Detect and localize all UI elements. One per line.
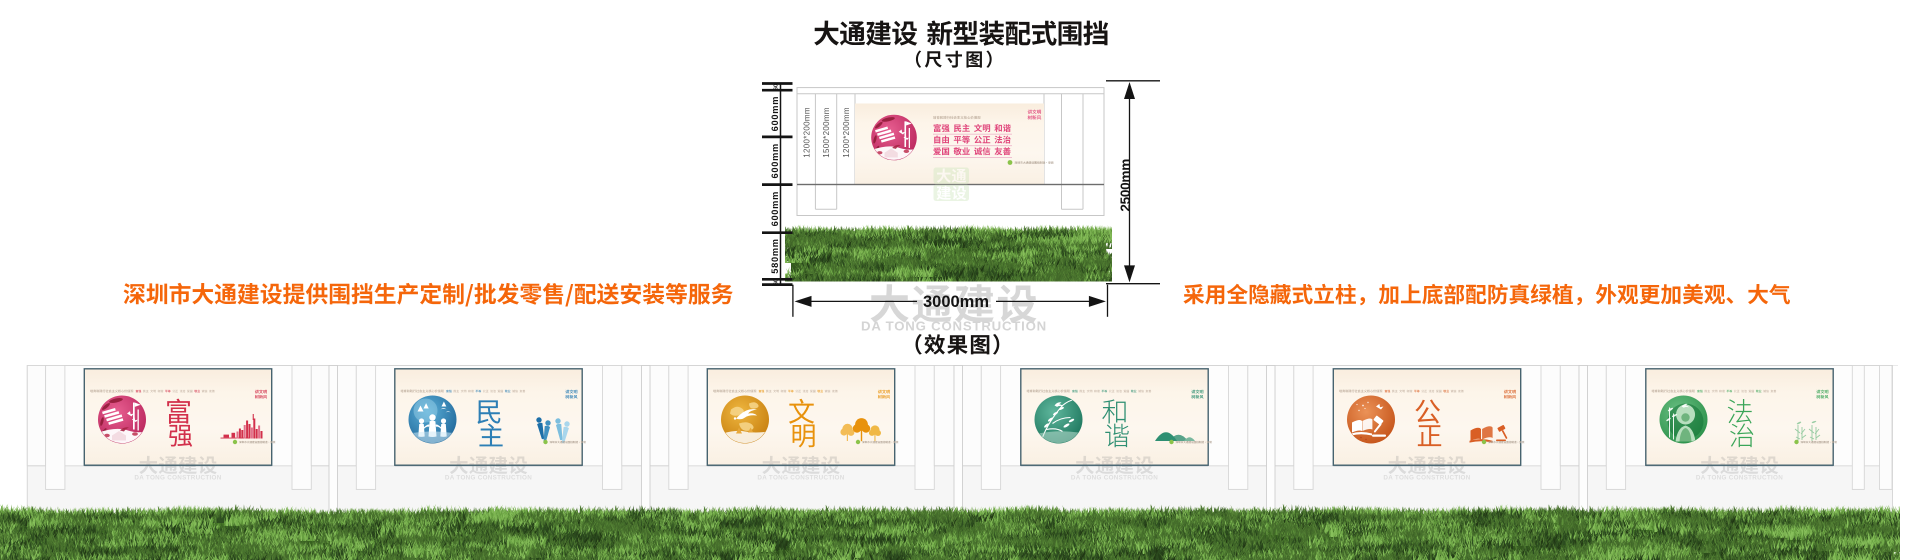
svg-text:DA TONG CONSTRUCTION: DA TONG CONSTRUCTION (757, 474, 844, 481)
svg-text:60: 60 (773, 84, 779, 90)
svg-text:1200*200mm: 1200*200mm (842, 107, 851, 158)
svg-text:DA TONG CONSTRUCTION: DA TONG CONSTRUCTION (1696, 474, 1783, 481)
svg-text:DA TONG CONSTRUCTION: DA TONG CONSTRUCTION (445, 474, 532, 481)
svg-text:60: 60 (773, 279, 779, 285)
svg-text:2500mm: 2500mm (1118, 159, 1133, 212)
svg-text:1200*200mm: 1200*200mm (803, 107, 812, 158)
svg-text:1500*200mm: 1500*200mm (822, 107, 831, 158)
svg-text:DA TONG CONSTRUCTION: DA TONG CONSTRUCTION (1071, 474, 1158, 481)
svg-text:DA TONG CONSTRUCTION: DA TONG CONSTRUCTION (134, 474, 221, 481)
svg-text:600mm: 600mm (770, 191, 780, 227)
svg-text:DA TONG CONSTRUCTION: DA TONG CONSTRUCTION (1383, 474, 1470, 481)
svg-text:600mm: 600mm (770, 96, 780, 132)
svg-text:3000mm: 3000mm (923, 293, 989, 311)
svg-text:600mm: 600mm (770, 143, 780, 179)
svg-text:DA TONG CONSTRUCTION: DA TONG CONSTRUCTION (861, 319, 1047, 334)
svg-text:580mm: 580mm (770, 238, 780, 274)
